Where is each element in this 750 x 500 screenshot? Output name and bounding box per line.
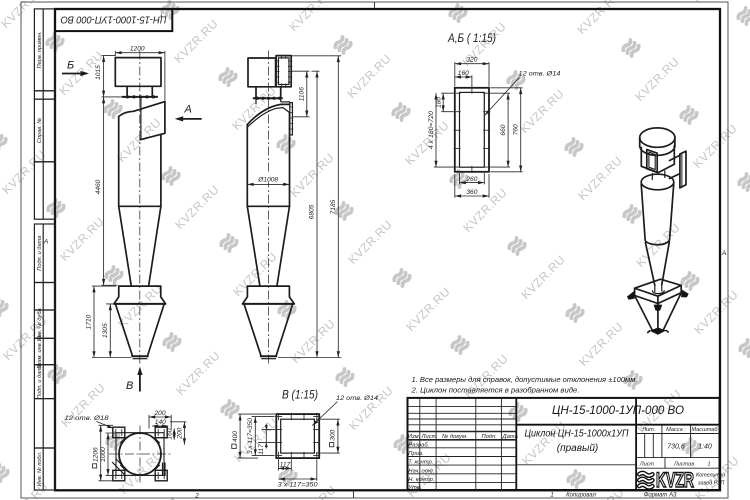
svg-text:Масштаб: Масштаб xyxy=(692,427,719,433)
svg-text:Б: Б xyxy=(67,60,74,72)
svg-text:3 x 117=350: 3 x 117=350 xyxy=(247,418,254,454)
svg-text:ЦН-15-1000-1УП-000 ВО: ЦН-15-1000-1УП-000 ВО xyxy=(552,403,684,417)
svg-text:12 отв. Ø14: 12 отв. Ø14 xyxy=(519,71,561,78)
svg-text:Справ. №: Справ. № xyxy=(37,118,43,143)
svg-text:Взам. инв. №: Взам. инв. № xyxy=(37,334,43,369)
svg-text:300: 300 xyxy=(330,429,337,440)
svg-text:А: А xyxy=(184,104,192,116)
svg-text:ЦН-15-1000-1УП-000 ВО: ЦН-15-1000-1УП-000 ВО xyxy=(61,14,167,26)
svg-text:А,Б ( 1:15): А,Б ( 1:15) xyxy=(447,33,496,45)
svg-text:1305: 1305 xyxy=(102,323,109,338)
svg-text:Подп. и дата: Подп. и дата xyxy=(37,236,43,271)
svg-text:В (1:15): В (1:15) xyxy=(282,389,318,401)
svg-text:1200: 1200 xyxy=(130,45,145,52)
svg-text:1206: 1206 xyxy=(93,447,100,462)
svg-text:760: 760 xyxy=(513,124,520,135)
svg-text:1106: 1106 xyxy=(298,87,305,102)
svg-text:Лит.: Лит. xyxy=(641,427,655,433)
svg-text:7185: 7185 xyxy=(330,199,337,214)
svg-text:А: А xyxy=(43,239,48,246)
svg-text:№ докум.: № докум. xyxy=(442,434,468,440)
svg-text:KVZR: KVZR xyxy=(656,469,694,492)
svg-text:Нач. отд.: Нач. отд. xyxy=(408,468,434,474)
svg-text:В: В xyxy=(126,380,133,392)
svg-text:Циклон ЦН-15-1000х1УП: Циклон ЦН-15-1000х1УП xyxy=(525,429,630,440)
svg-text:Листов: Листов xyxy=(673,462,694,468)
svg-text:Лист: Лист xyxy=(639,462,655,468)
svg-text:160: 160 xyxy=(458,70,469,77)
svg-text:6805: 6805 xyxy=(309,204,316,219)
svg-text:Разраб.: Разраб. xyxy=(408,443,429,449)
svg-text:117: 117 xyxy=(258,444,265,455)
svg-text:160: 160 xyxy=(167,428,174,439)
svg-text:4460: 4460 xyxy=(95,179,102,194)
svg-text:(правый): (правый) xyxy=(557,443,598,454)
svg-text:Формат А3: Формат А3 xyxy=(644,493,677,499)
svg-text:А: А xyxy=(721,250,726,257)
svg-text:1: 1 xyxy=(550,493,553,499)
svg-text:12 отв. Ø18: 12 отв. Ø18 xyxy=(65,415,109,422)
svg-text:320: 320 xyxy=(466,57,477,64)
svg-text:4 x 180=720: 4 x 180=720 xyxy=(428,111,435,149)
svg-text:Котельный: Котельный xyxy=(696,472,725,479)
svg-text:1710: 1710 xyxy=(86,314,93,329)
svg-text:Ø1008: Ø1008 xyxy=(257,176,278,183)
svg-text:завод РЗП: завод РЗП xyxy=(697,481,724,487)
svg-text:Подп. и дата: Подп. и дата xyxy=(37,364,43,399)
svg-text:2. Циклон поставляется в разоб: 2. Циклон поставляется в разобранном вид… xyxy=(410,386,579,395)
svg-text:660: 660 xyxy=(500,124,507,135)
svg-text:Изм.: Изм. xyxy=(408,434,420,440)
svg-text:200: 200 xyxy=(177,427,184,439)
svg-text:Перв. примен.: Перв. примен. xyxy=(37,31,43,68)
svg-text:1015: 1015 xyxy=(95,65,102,80)
svg-text:3 x 117=350: 3 x 117=350 xyxy=(278,481,318,488)
svg-text:Н. контр.: Н. контр. xyxy=(408,477,434,483)
svg-text:200: 200 xyxy=(153,410,165,417)
svg-text:730,6: 730,6 xyxy=(667,443,685,450)
svg-text:Инв. № подл.: Инв. № подл. xyxy=(37,452,43,487)
svg-text:Масса :: Масса : xyxy=(666,427,686,433)
svg-text:1. Все размеры для справок, до: 1. Все размеры для справок, допустимые о… xyxy=(412,375,638,384)
svg-text:400: 400 xyxy=(232,431,239,442)
svg-text:117: 117 xyxy=(280,462,291,469)
svg-text:2: 2 xyxy=(194,494,199,500)
svg-text:Подп.: Подп. xyxy=(482,434,497,440)
svg-text:1: 1 xyxy=(707,462,710,468)
svg-text:360: 360 xyxy=(466,189,477,196)
svg-text:260: 260 xyxy=(465,176,477,183)
svg-text:1:40: 1:40 xyxy=(698,443,712,450)
svg-text:140: 140 xyxy=(155,419,166,426)
svg-text:Пров.: Пров. xyxy=(408,451,423,457)
svg-text:Лист: Лист xyxy=(421,434,437,440)
svg-text:12 отв. Ø14: 12 отв. Ø14 xyxy=(336,395,378,402)
svg-text:Т. контр.: Т. контр. xyxy=(408,460,433,466)
svg-text:Дата: Дата xyxy=(502,434,519,440)
svg-text:Копировал: Копировал xyxy=(566,493,596,499)
svg-text:Утв.: Утв. xyxy=(407,485,421,491)
